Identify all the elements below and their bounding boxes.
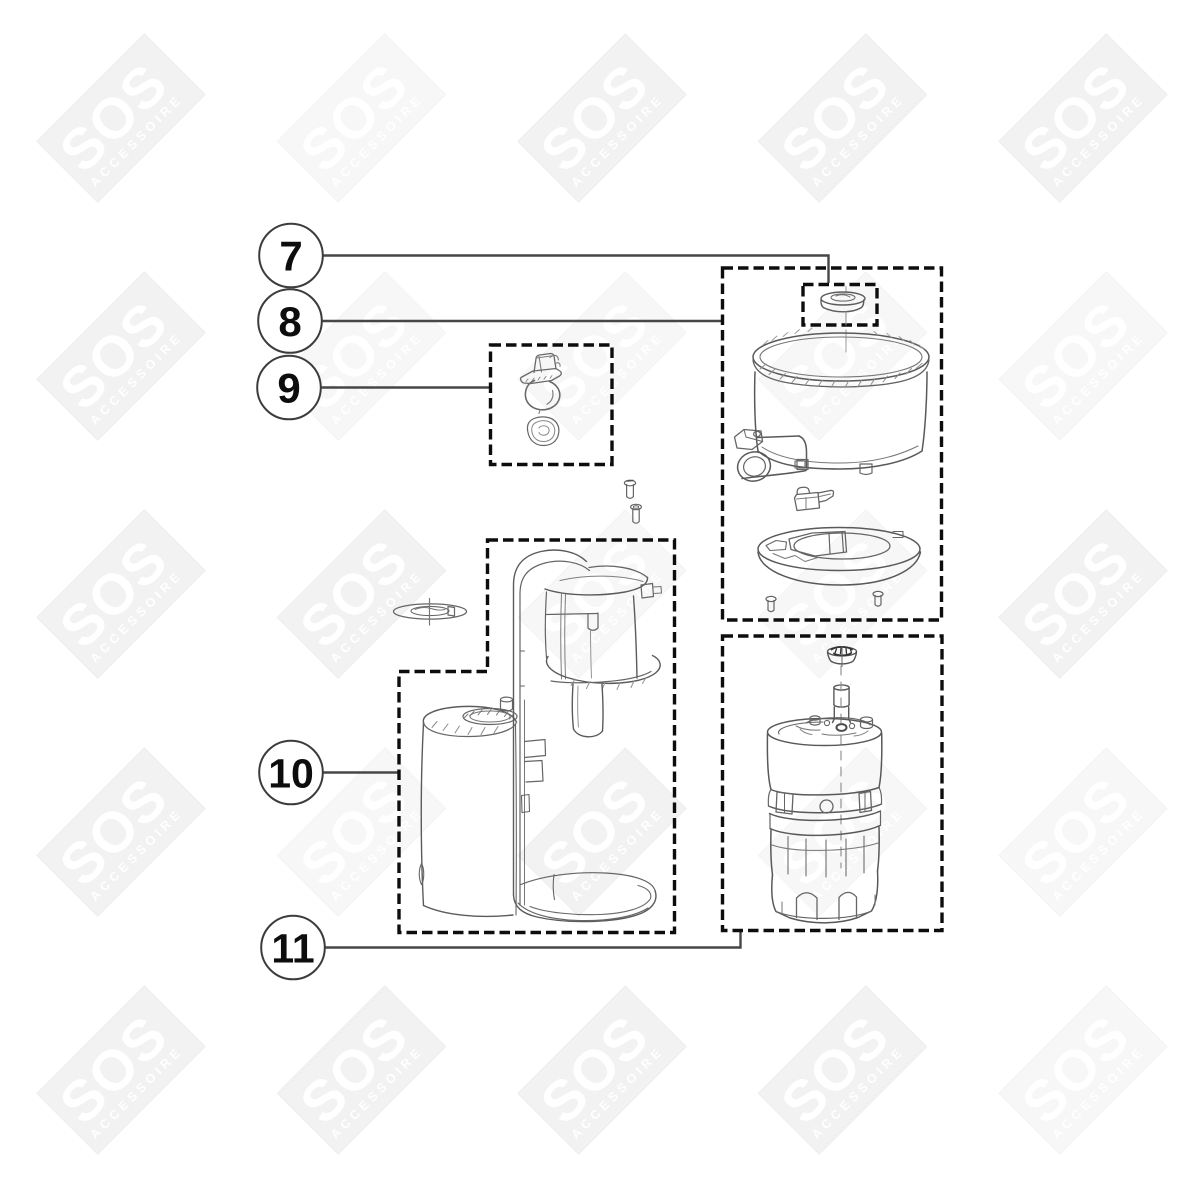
svg-text:11: 11 bbox=[271, 926, 314, 972]
svg-text:10: 10 bbox=[268, 751, 314, 797]
svg-text:9: 9 bbox=[277, 365, 300, 412]
svg-text:7: 7 bbox=[279, 233, 302, 280]
svg-text:8: 8 bbox=[278, 298, 301, 345]
